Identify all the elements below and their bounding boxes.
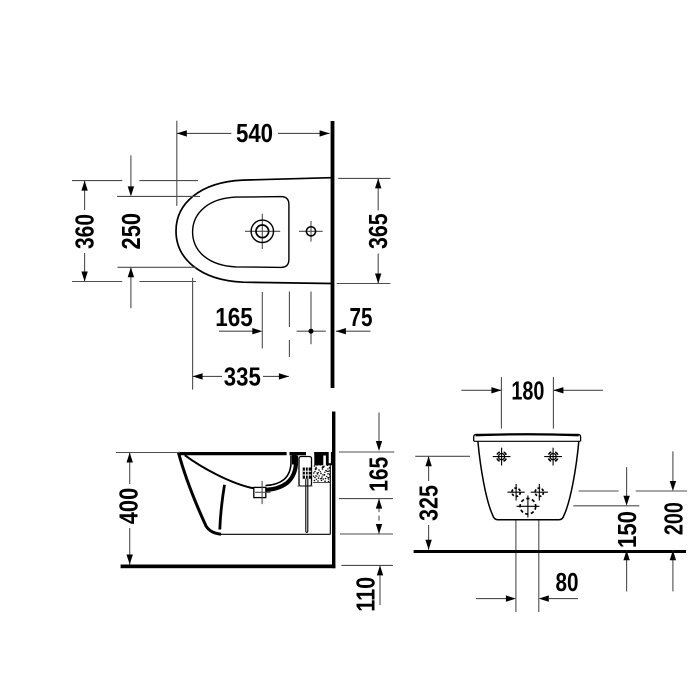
svg-text:360: 360 — [70, 214, 100, 249]
svg-text:150: 150 — [612, 511, 642, 548]
svg-text:365: 365 — [363, 213, 393, 249]
svg-text:75: 75 — [350, 302, 373, 332]
svg-text:110: 110 — [351, 577, 381, 612]
svg-text:400: 400 — [114, 488, 144, 525]
svg-text:80: 80 — [556, 567, 579, 597]
svg-text:180: 180 — [511, 375, 544, 405]
svg-text:325: 325 — [414, 485, 444, 521]
svg-text:200: 200 — [658, 502, 688, 535]
svg-text:250: 250 — [116, 213, 146, 250]
svg-text:165: 165 — [215, 302, 253, 332]
svg-text:335: 335 — [224, 362, 261, 392]
svg-text:165: 165 — [364, 457, 394, 492]
svg-text:540: 540 — [236, 118, 273, 148]
